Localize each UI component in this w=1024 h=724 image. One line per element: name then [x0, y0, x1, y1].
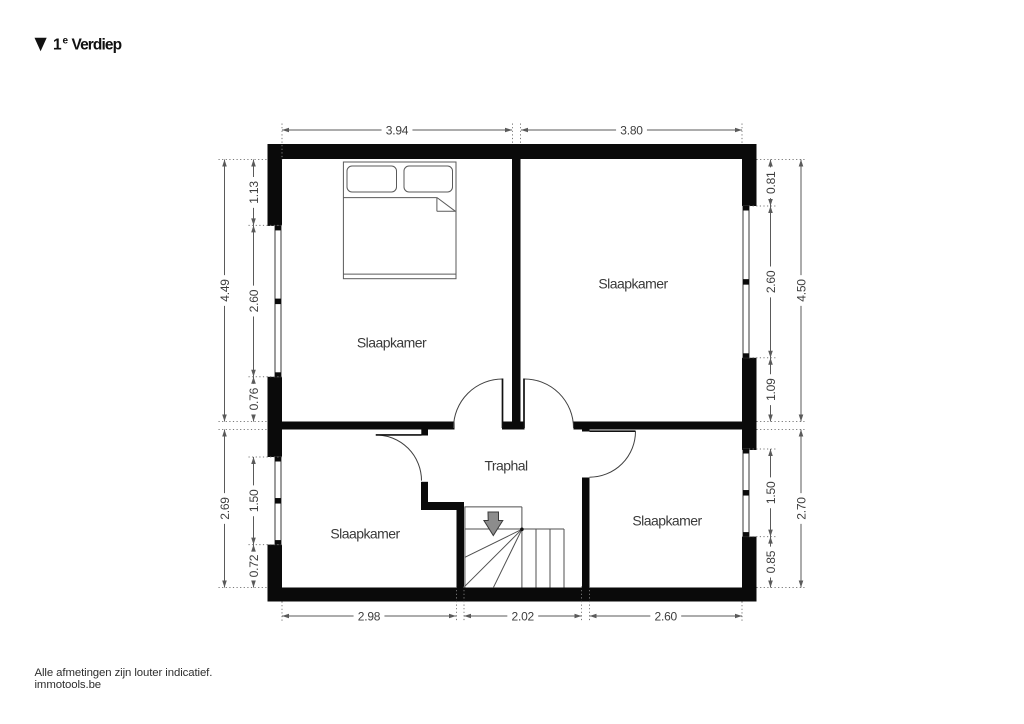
svg-text:4.49: 4.49 — [218, 279, 232, 302]
svg-text:e: e — [63, 36, 69, 47]
svg-text:1.13: 1.13 — [247, 181, 261, 204]
svg-text:Alle afmetingen zijn louter in: Alle afmetingen zijn louter indicatief. — [35, 667, 213, 679]
svg-text:0.81: 0.81 — [764, 171, 778, 194]
svg-text:2.70: 2.70 — [794, 497, 808, 520]
svg-text:3.80: 3.80 — [620, 123, 643, 137]
svg-text:4.50: 4.50 — [794, 279, 808, 302]
svg-text:2.60: 2.60 — [654, 609, 677, 623]
svg-text:2.02: 2.02 — [511, 609, 534, 623]
svg-text:1.09: 1.09 — [764, 378, 778, 401]
svg-text:Verdiep: Verdiep — [72, 37, 122, 54]
svg-text:Slaapkamer: Slaapkamer — [330, 526, 400, 542]
svg-text:2.60: 2.60 — [764, 270, 778, 293]
svg-text:3.94: 3.94 — [386, 123, 409, 137]
svg-text:0.85: 0.85 — [764, 550, 778, 573]
svg-text:immotools.be: immotools.be — [35, 679, 102, 691]
svg-text:1.50: 1.50 — [247, 489, 261, 512]
svg-text:Slaapkamer: Slaapkamer — [357, 335, 427, 351]
svg-text:2.98: 2.98 — [358, 609, 381, 623]
svg-text:2.60: 2.60 — [247, 289, 261, 312]
svg-text:1.50: 1.50 — [764, 481, 778, 504]
svg-text:1: 1 — [53, 37, 62, 54]
svg-text:Slaapkamer: Slaapkamer — [632, 513, 702, 529]
svg-text:2.69: 2.69 — [218, 497, 232, 520]
svg-text:Traphal: Traphal — [484, 458, 528, 474]
svg-text:0.72: 0.72 — [247, 554, 261, 577]
svg-text:0.76: 0.76 — [247, 387, 261, 410]
svg-text:Slaapkamer: Slaapkamer — [598, 276, 668, 292]
